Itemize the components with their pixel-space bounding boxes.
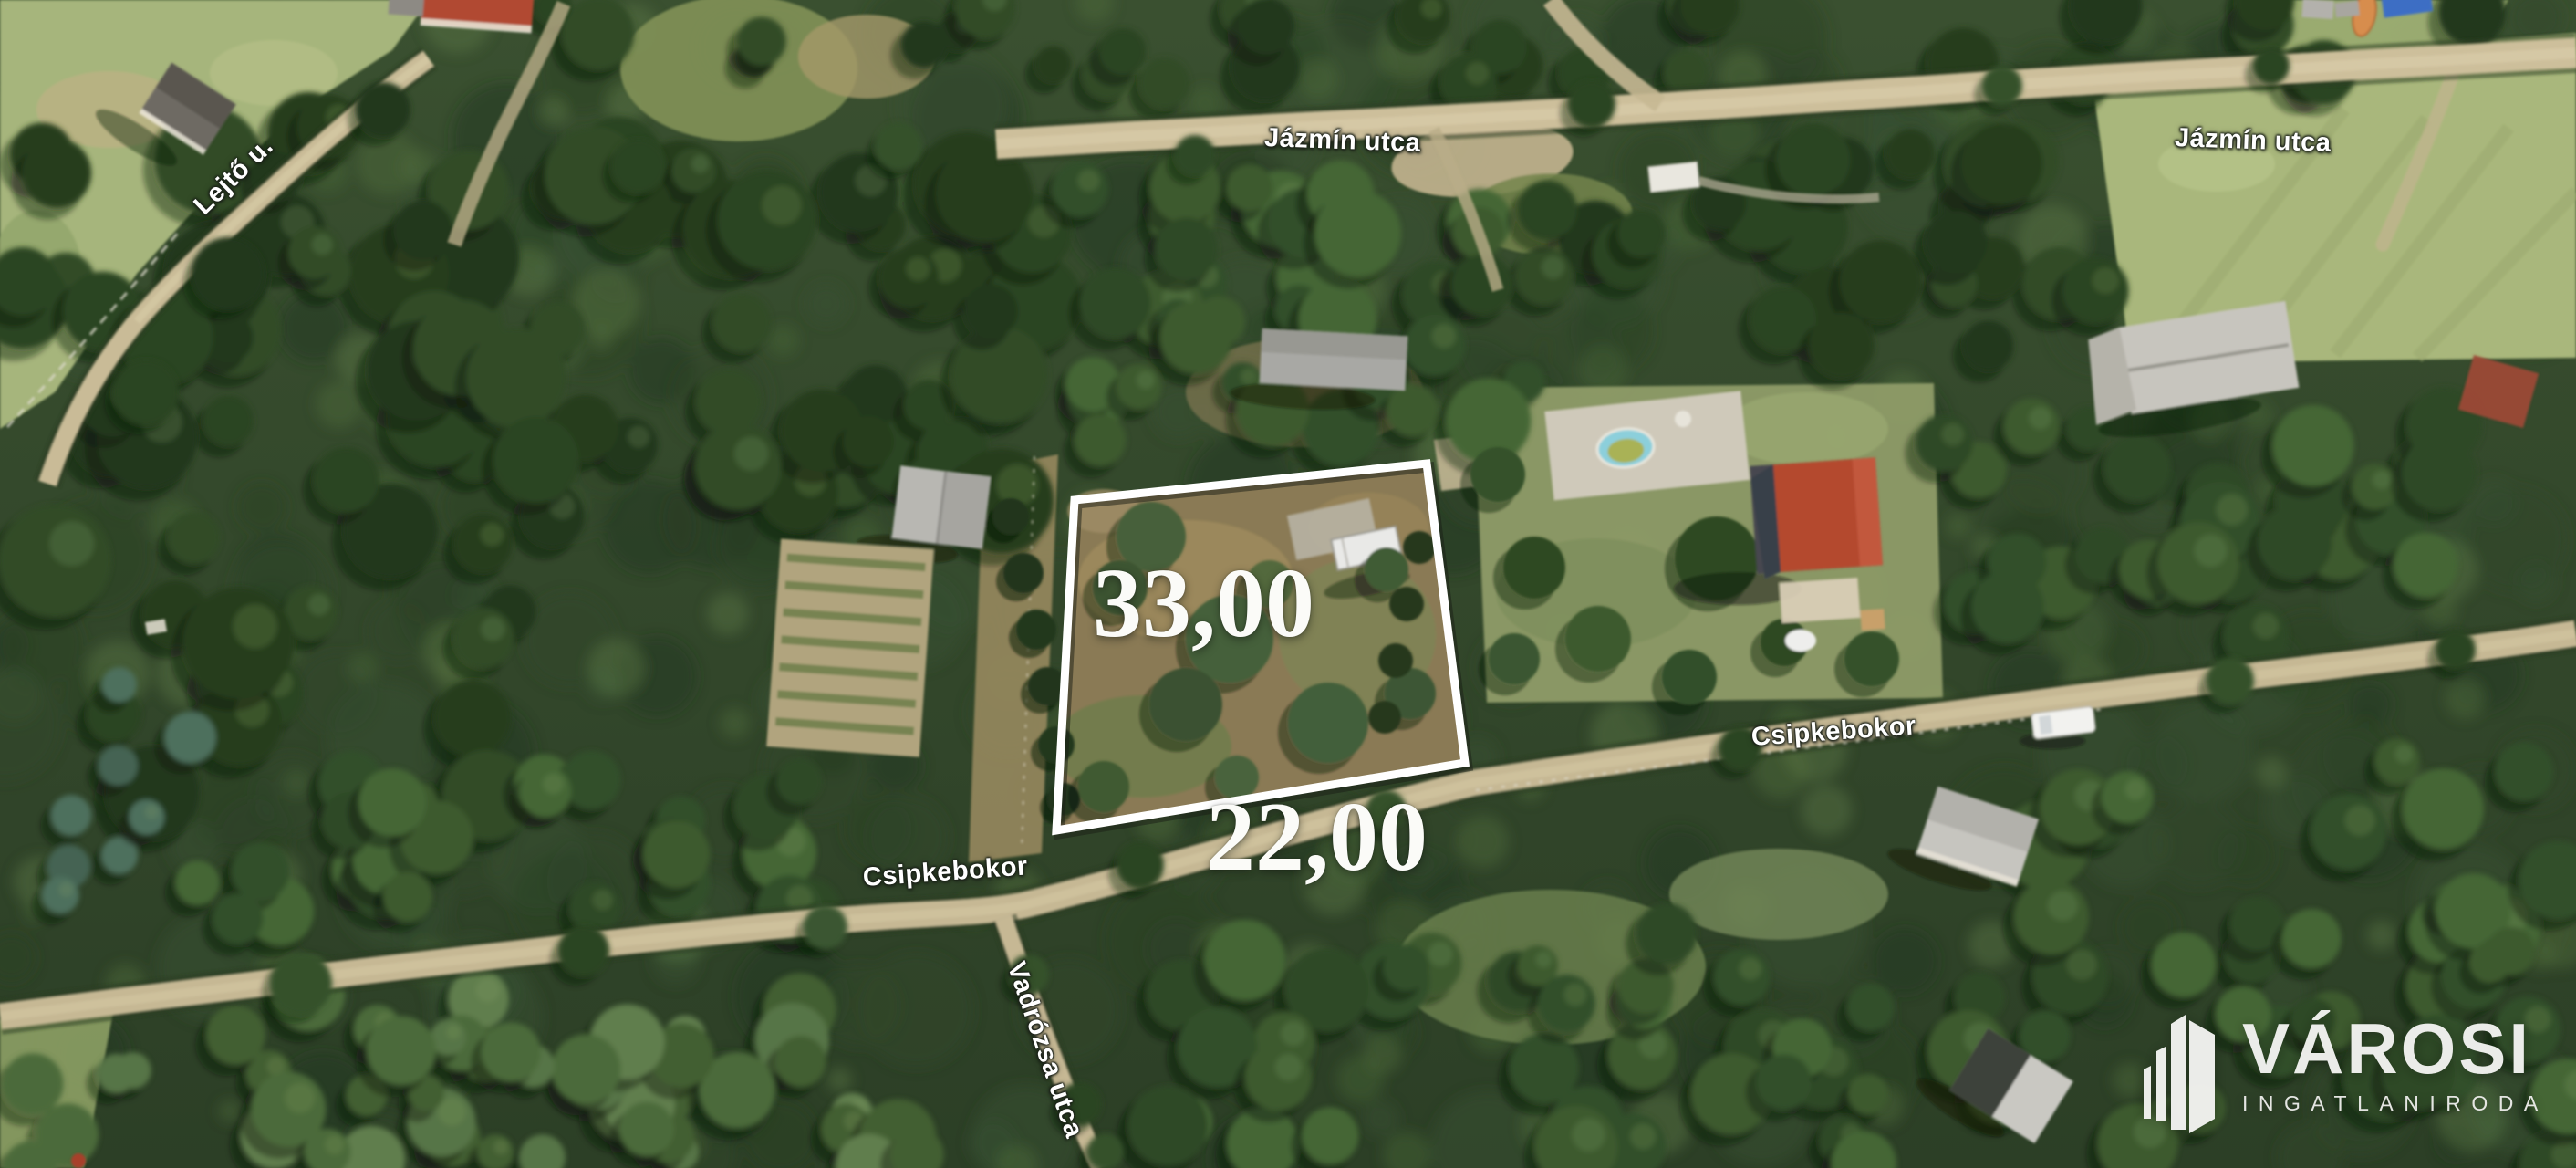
tree-highlight <box>1740 957 1762 980</box>
tree-canopy <box>2352 464 2397 509</box>
tree-canopy <box>1053 162 1108 217</box>
aerial-listing-image: Lejtő u. Jázmín utca Jázmín utca Csipkeb… <box>0 0 2576 1168</box>
tree-canopy <box>2282 909 2342 968</box>
tree-canopy <box>776 758 822 804</box>
tree-canopy <box>1962 123 2043 204</box>
tree-canopy <box>314 447 379 513</box>
tree-canopy <box>22 139 91 208</box>
tree-canopy <box>1756 1054 1812 1110</box>
tree-canopy <box>717 171 816 270</box>
tree-canopy <box>1452 255 1513 316</box>
ground-mottle <box>2256 756 2288 788</box>
tree-highlight <box>2395 746 2414 764</box>
tree-canopy <box>99 746 139 786</box>
tree-highlight <box>481 523 504 547</box>
tree-canopy <box>563 751 621 809</box>
ground-mottle <box>827 1068 852 1092</box>
shed-small <box>2301 0 2333 19</box>
tree-canopy <box>42 876 79 913</box>
tree-canopy <box>3 1053 64 1114</box>
tree-canopy <box>1314 190 1401 276</box>
tree-highlight <box>481 617 504 641</box>
building-bar-2 <box>2156 1047 2166 1121</box>
tree-highlight <box>592 890 613 911</box>
tree-highlight <box>2124 779 2145 800</box>
tree-canopy <box>1099 28 1146 75</box>
tree-canopy <box>1080 267 1151 339</box>
ground-mottle <box>347 652 378 683</box>
tree-canopy <box>1714 949 1770 1005</box>
tree-highlight <box>691 155 709 172</box>
tree-canopy <box>1885 130 1935 179</box>
tree-canopy <box>1160 301 1233 374</box>
tree-canopy <box>2394 533 2457 597</box>
ground-mottle <box>1579 345 1627 393</box>
tree-canopy <box>1538 975 1595 1032</box>
tree-canopy <box>466 328 566 427</box>
ground-mottle <box>1336 1056 1384 1103</box>
ground-mottle <box>805 283 848 326</box>
red-object <box>71 1153 86 1168</box>
tree-canopy <box>1848 1074 1888 1114</box>
tree-canopy <box>1383 944 1429 991</box>
lawn-patch <box>1724 392 1888 465</box>
brand-name: VÁROSI <box>2242 1013 2549 1084</box>
garden-rows <box>766 539 933 757</box>
tree-canopy <box>1963 320 2013 370</box>
tree-canopy <box>2402 435 2477 510</box>
parcel-dimension-frontage: 22,00 <box>1206 781 1428 894</box>
tree-highlight <box>1466 62 1489 85</box>
brand-tagline: INGATLANIRODA <box>2242 1091 2549 1116</box>
tree-canopy <box>1139 58 1189 109</box>
tree-highlight <box>438 1099 465 1126</box>
ground-mottle <box>2463 487 2568 592</box>
tree-highlight <box>734 436 769 471</box>
ground-mottle <box>720 708 750 738</box>
tree-highlight <box>1542 255 1564 278</box>
tree-canopy <box>1516 247 1574 305</box>
terrace <box>1780 578 1861 623</box>
tree-canopy <box>695 423 781 509</box>
tree-canopy <box>394 201 453 260</box>
tree-canopy <box>1035 47 1072 83</box>
tree-highlight <box>2067 950 2097 980</box>
tree-canopy <box>1847 984 1894 1030</box>
conifer <box>1016 610 1056 650</box>
tree-highlight <box>2195 535 2228 568</box>
tree-canopy <box>182 588 294 699</box>
tree-canopy <box>1117 364 1161 409</box>
tree-canopy <box>2469 942 2510 983</box>
tree-canopy <box>206 1006 265 1065</box>
ground-mottle <box>237 483 287 533</box>
tree-canopy <box>232 842 289 900</box>
tree-canopy <box>2495 743 2553 801</box>
ground-mottle <box>1362 1100 1399 1138</box>
tree-canopy <box>2152 933 2217 997</box>
tree-canopy <box>2014 880 2089 954</box>
parcel-dimension-length: 33,00 <box>1093 547 1314 661</box>
tree-highlight <box>312 234 333 255</box>
ground-mottle <box>1801 785 1852 836</box>
tree-canopy <box>1075 414 1127 466</box>
tree-canopy <box>1405 315 1466 376</box>
tree-highlight <box>543 774 564 795</box>
tree-canopy <box>1840 240 1922 322</box>
tree-canopy <box>482 1022 541 1081</box>
tree-highlight <box>1573 1119 1605 1152</box>
white-car <box>1785 630 1816 652</box>
white-gate-roof <box>1648 162 1700 192</box>
tree-highlight <box>1137 371 1155 390</box>
tree-canopy <box>2062 257 2129 324</box>
tree-canopy <box>97 1054 136 1093</box>
brand-watermark: VÁROSI INGATLANIRODA <box>2144 1013 2549 1135</box>
tree-canopy <box>0 505 111 617</box>
ground-mottle <box>1298 59 1339 100</box>
meadow-bottom <box>1669 849 1888 940</box>
tree-canopy <box>901 22 948 68</box>
tree-canopy <box>775 1036 826 1087</box>
tree-canopy <box>879 248 939 308</box>
tree-canopy <box>1226 164 1272 211</box>
tree-canopy <box>1925 211 1987 273</box>
tree-canopy <box>737 17 785 66</box>
tree-canopy <box>51 795 92 836</box>
shed-small <box>1860 609 1885 631</box>
tree-canopy <box>383 872 432 922</box>
tree-highlight <box>233 604 277 649</box>
tree-canopy <box>2311 794 2386 870</box>
ground-mottle <box>2113 1063 2147 1098</box>
van-windshield <box>2039 715 2052 735</box>
tree-canopy <box>213 893 263 944</box>
tree-canopy <box>454 608 514 668</box>
ground-mottle <box>1457 816 1509 868</box>
tree-canopy <box>963 284 1017 338</box>
tree-canopy <box>493 417 578 503</box>
tree-canopy <box>2157 522 2238 603</box>
tree-highlight <box>1275 1054 1302 1080</box>
tree-canopy <box>552 1034 621 1103</box>
conifer <box>992 498 1029 535</box>
ground-mottle <box>1872 928 1937 994</box>
tree-highlight <box>628 426 649 448</box>
tree-canopy <box>562 0 634 69</box>
tree-highlight <box>2048 891 2078 921</box>
tree-canopy <box>288 226 341 279</box>
tree-highlight <box>2029 407 2051 429</box>
tree-highlight <box>1941 422 1964 445</box>
tree-highlight <box>308 594 330 616</box>
ground-mottle <box>1946 514 1971 539</box>
ground-mottle <box>707 593 749 635</box>
tree-canopy <box>2104 434 2171 501</box>
building-bar-1 <box>2144 1066 2151 1119</box>
tree-canopy <box>520 766 572 818</box>
building-tower <box>2171 1015 2186 1130</box>
tree-highlight <box>1432 324 1457 349</box>
tree-canopy <box>1636 903 1698 965</box>
street-label-jazmin-top: Jázmín utca <box>1263 123 1421 159</box>
tree-canopy <box>1916 414 1972 471</box>
tree-highlight <box>1077 170 1099 192</box>
tree-highlight <box>1563 983 1586 1006</box>
tree-highlight <box>49 521 94 566</box>
building-wing <box>2189 1020 2215 1133</box>
tree-canopy <box>358 768 426 836</box>
tree-canopy <box>2272 405 2353 486</box>
tree-canopy <box>168 512 220 564</box>
building-wing <box>389 0 425 16</box>
tree-canopy <box>434 680 511 756</box>
tree-highlight <box>493 1140 508 1154</box>
tree-highlight <box>58 882 73 897</box>
shed-small <box>2334 1 2360 18</box>
tree-highlight <box>762 185 801 224</box>
tree-canopy <box>2403 768 2484 850</box>
tree-canopy <box>712 294 771 352</box>
ground-mottle <box>316 381 361 427</box>
ground-mottle <box>628 338 694 403</box>
tree-highlight <box>1630 1123 1657 1150</box>
tree-highlight <box>2344 806 2374 836</box>
tree-canopy <box>1809 313 1875 379</box>
tree-highlight <box>2093 267 2119 294</box>
tree-canopy <box>1155 217 1218 280</box>
tree-canopy <box>1205 920 1286 1001</box>
buildings-icon <box>2144 1013 2218 1135</box>
tree-canopy <box>1617 209 1666 257</box>
tree-canopy <box>643 821 711 889</box>
tree-canopy <box>1245 1044 1312 1111</box>
tree-highlight <box>1536 952 1553 968</box>
tree-canopy <box>367 1016 436 1085</box>
ground-mottle <box>844 795 912 863</box>
tree-highlight <box>1281 1021 1305 1046</box>
ground-mottle <box>2446 679 2485 718</box>
tree-canopy <box>1971 570 2044 643</box>
tree-canopy <box>1128 1086 1208 1165</box>
ground-mottle <box>2366 921 2396 951</box>
tree-highlight <box>2216 494 2248 526</box>
ground-mottle <box>283 768 311 797</box>
brand-text: VÁROSI INGATLANIRODA <box>2242 1013 2549 1116</box>
tree-highlight <box>475 978 499 1002</box>
tree-canopy <box>2004 399 2060 454</box>
tree-canopy <box>1776 122 1850 196</box>
tree-highlight <box>145 805 160 819</box>
tree-highlight <box>285 1083 315 1113</box>
conifer <box>1003 553 1044 593</box>
tree-canopy <box>2374 738 2420 784</box>
ground-mottle <box>539 97 568 126</box>
tree-canopy <box>203 396 254 446</box>
tree-canopy <box>2102 771 2154 823</box>
tree-highlight <box>325 1135 343 1153</box>
tree-canopy <box>1518 181 1577 240</box>
tree-canopy <box>1387 384 1438 435</box>
tree-canopy <box>1238 0 1294 55</box>
tree-canopy <box>102 667 137 702</box>
tree-highlight <box>1428 942 1453 966</box>
tree-highlight <box>906 257 930 281</box>
street-label-jazmin-right: Jázmín utca <box>2174 123 2332 159</box>
tree-canopy <box>2258 505 2332 579</box>
ground-mottle <box>218 1100 240 1122</box>
tree-canopy <box>175 860 220 905</box>
tree-canopy <box>454 514 513 572</box>
tree-canopy <box>1302 1107 1359 1164</box>
tree-canopy <box>619 1101 674 1156</box>
tree-highlight <box>2373 471 2391 489</box>
ground-mottle <box>587 640 644 696</box>
tree-canopy <box>164 712 215 763</box>
tree-highlight <box>2253 613 2279 639</box>
tree-highlight <box>446 1025 461 1039</box>
tree-canopy <box>843 416 893 466</box>
tree-canopy <box>129 799 164 835</box>
ground-mottle <box>767 325 799 357</box>
